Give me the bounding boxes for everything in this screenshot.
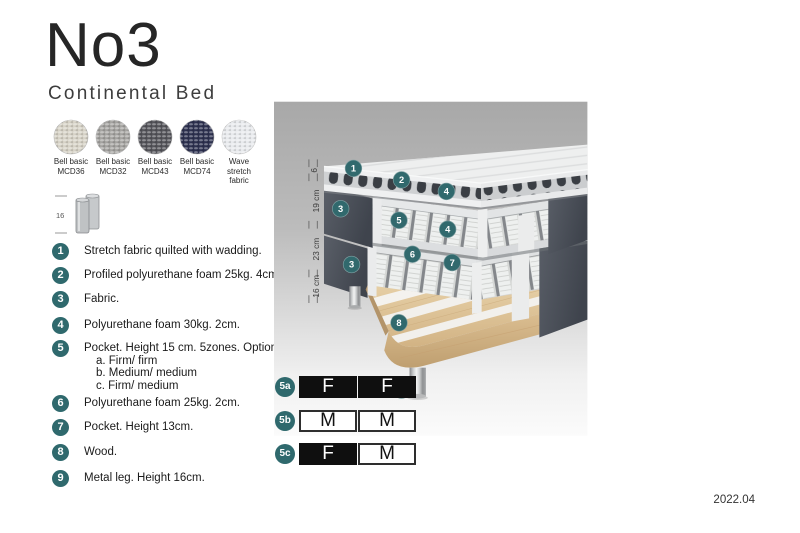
fabric-swatch-icon: [137, 119, 173, 155]
legend-text: Pocket. Height 15 cm. 5zones. Option:: [84, 340, 280, 357]
firmness-row-5c: 5c F M: [275, 443, 417, 465]
legend-number-badge: 8: [52, 444, 69, 461]
legend-number-badge: 7: [52, 419, 69, 436]
version-stamp: 2022.04: [695, 494, 755, 506]
callout-3a: 3: [332, 200, 349, 217]
svg-text:2: 2: [399, 175, 404, 185]
legend-text: Fabric.: [84, 291, 119, 308]
legend-item-4: 4 Polyurethane foam 30kg. 2cm.: [52, 317, 240, 334]
dimension-topper: 6: [309, 168, 319, 173]
metal-leg-back: [348, 286, 362, 309]
firmness-row-5a: 5a F F: [275, 376, 417, 398]
firmness-cell: F: [299, 376, 357, 398]
mattress-frame-post: [373, 197, 382, 247]
legend-number-badge: 2: [52, 267, 69, 284]
swatch-name: Bell basic: [180, 157, 214, 166]
callout-2: 2: [393, 172, 410, 189]
legend-text: Stretch fabric quilted with wadding.: [84, 243, 262, 260]
dimension-base: 23 cm: [311, 238, 321, 261]
firmness-row-5b: 5b M M: [275, 410, 417, 432]
fabric-swatch: Bell basicMCD32: [92, 119, 134, 186]
fabric-swatch-icon: [179, 119, 215, 155]
base-frame-post: [368, 244, 377, 297]
legend-number-badge: 9: [52, 470, 69, 487]
fabric-swatch: Bell basicMCD36: [50, 119, 92, 186]
callout-5: 5: [391, 212, 408, 229]
firmness-option-badge: 5b: [275, 411, 295, 431]
pocket-option-a: a. Firm/ firm: [96, 355, 197, 367]
svg-text:6: 6: [410, 249, 415, 259]
firmness-cell: M: [358, 410, 416, 432]
swatch-name: Wave: [229, 157, 249, 166]
callout-1: 1: [345, 160, 362, 177]
svg-text:5: 5: [396, 215, 401, 225]
leg-height-label: 16: [56, 211, 64, 220]
callout-6: 6: [404, 246, 421, 263]
svg-text:8: 8: [396, 318, 401, 328]
svg-text:3: 3: [338, 204, 343, 214]
legend-number-badge: 4: [52, 317, 69, 334]
dimension-leg: 16 cm: [311, 275, 321, 298]
firmness-cell: F: [299, 443, 357, 465]
legend-item-8: 8 Wood.: [52, 444, 117, 461]
swatch-name: Bell basic: [96, 157, 130, 166]
legend-item-9: 9 Metal leg. Height 16cm.: [52, 470, 205, 487]
base-frame-post: [512, 249, 529, 321]
mattress-frame-post: [518, 213, 534, 255]
legend-number-badge: 3: [52, 291, 69, 308]
legend-number-badge: 5: [52, 340, 69, 357]
firmness-cell: M: [299, 410, 357, 432]
callout-3b: 3: [343, 256, 360, 273]
svg-text:4: 4: [444, 187, 450, 197]
swatch-name: Bell basic: [54, 157, 88, 166]
svg-text:1: 1: [351, 164, 356, 174]
pocket-option-b: b. Medium/ medium: [96, 367, 197, 379]
page-subtitle: Continental Bed: [48, 83, 216, 105]
callout-7: 7: [444, 254, 461, 271]
svg-text:3: 3: [349, 260, 354, 270]
swatch-code: MCD74: [183, 167, 210, 176]
metal-leg-icon: 16: [52, 189, 110, 239]
page: No3 Continental Bed Bell basicMCD36 Bell…: [0, 0, 800, 533]
fabric-swatch: Bell basicMCD74: [176, 119, 218, 186]
callout-4b: 4: [439, 221, 456, 238]
firmness-cell: F: [358, 376, 416, 398]
svg-text:7: 7: [450, 258, 455, 268]
firmness-option-badge: 5c: [275, 444, 295, 464]
legend-text: Polyurethane foam 25kg. 2cm.: [84, 395, 240, 412]
pocket-option-c: c. Firm/ medium: [96, 380, 197, 392]
mattress-frame-post: [478, 209, 488, 260]
legend-text: Pocket. Height 13cm.: [84, 419, 193, 436]
legend-item-6: 6 Polyurethane foam 25kg. 2cm.: [52, 395, 240, 412]
fabric-swatches: Bell basicMCD36 Bell basicMCD32 Bell bas…: [50, 119, 260, 186]
legend-item-3: 3 Fabric.: [52, 291, 119, 308]
swatch-name: Bell basic: [138, 157, 172, 166]
fabric-swatch-icon: [95, 119, 131, 155]
svg-text:4: 4: [445, 224, 451, 234]
legend-text: Polyurethane foam 30kg. 2cm.: [84, 317, 240, 334]
legend-text: Profiled polyurethane foam 25kg. 4cm.: [84, 267, 281, 284]
fabric-swatch: Wavestretch fabric: [218, 119, 260, 186]
fabric-swatch: Bell basicMCD43: [134, 119, 176, 186]
legend-number-badge: 6: [52, 395, 69, 412]
legend-item-1: 1 Stretch fabric quilted with wadding.: [52, 243, 262, 260]
swatch-code: MCD43: [141, 167, 168, 176]
legend-text: Metal leg. Height 16cm.: [84, 470, 205, 487]
legend-text: Wood.: [84, 444, 117, 461]
swatch-code: stretch fabric: [227, 167, 251, 186]
callout-8: 8: [391, 314, 408, 331]
legend-item-5-options: a. Firm/ firm b. Medium/ medium c. Firm/…: [96, 355, 197, 392]
legend-item-5: 5 Pocket. Height 15 cm. 5zones. Option:: [52, 340, 280, 357]
firmness-option-badge: 5a: [275, 377, 295, 397]
legend-item-7: 7 Pocket. Height 13cm.: [52, 419, 193, 436]
fabric-swatch-icon: [53, 119, 89, 155]
base-frame-post: [472, 262, 482, 314]
swatch-code: MCD32: [99, 167, 126, 176]
swatch-code: MCD36: [57, 167, 84, 176]
dimension-mattress: 19 cm: [311, 190, 321, 213]
firmness-cell: M: [358, 443, 416, 465]
legend-item-2: 2 Profiled polyurethane foam 25kg. 4cm.: [52, 267, 281, 284]
fabric-swatch-icon: [221, 119, 257, 155]
callout-4a: 4: [438, 183, 455, 200]
page-title: No3: [45, 10, 162, 81]
leg-dimension-icon: 16: [52, 189, 110, 244]
legend-number-badge: 1: [52, 243, 69, 260]
